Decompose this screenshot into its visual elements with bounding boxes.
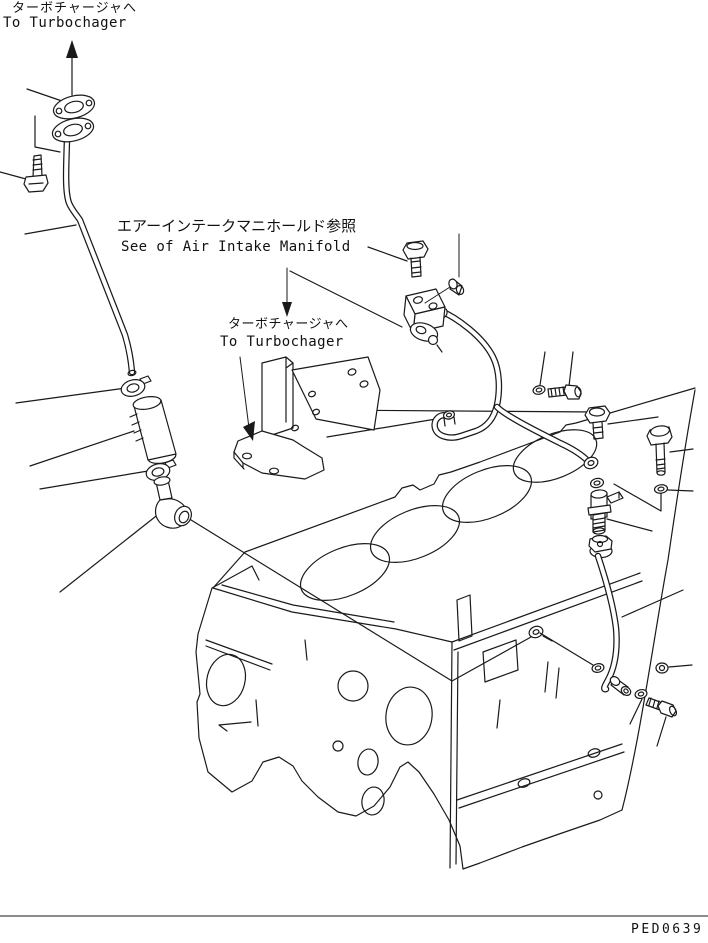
union-fitting [588,489,623,534]
label-to-turbocharger-top-en: To Turbochager [3,16,127,31]
oil-supply-pipe-upper [435,309,588,461]
parts-diagram-drawing [0,0,708,943]
washer-long-bolt [654,484,668,494]
washer-mid-right [590,477,605,489]
parts-diagram-page: ターボチャージャへ To Turbochager エアーインテークマニホールド参… [0,0,708,943]
banjo-fitting-lower [609,675,633,697]
flange-gasket-lower [50,114,96,146]
angled-bolt [646,698,678,717]
mounting-bolt [403,241,428,277]
label-intake-manifold-ref-jp: エアーインテークマニホールド参照 [117,218,356,235]
arrow-to-turbocharger-top [66,40,78,95]
label-to-turbocharger-mid-en: To Turbochager [220,335,344,350]
short-bolt [548,385,582,399]
manifold-bracket [234,357,380,479]
washer-engine-port [591,663,605,674]
hex-bolt-right [585,406,610,439]
turbo-oil-drain-pipe [66,140,136,376]
long-hex-bolt [647,425,672,475]
washer-top [532,385,545,396]
drawing-code: PED0639 [631,923,703,937]
hose-clamp-upper [119,376,151,399]
elbow-fitting [153,476,194,529]
oil-return-hose [130,395,177,466]
hex-bolt-left [24,155,48,192]
label-to-turbocharger-mid-jp: ターボチャージャへ [228,318,348,332]
label-intake-manifold-ref-en: See of Air Intake Manifold [121,240,351,255]
